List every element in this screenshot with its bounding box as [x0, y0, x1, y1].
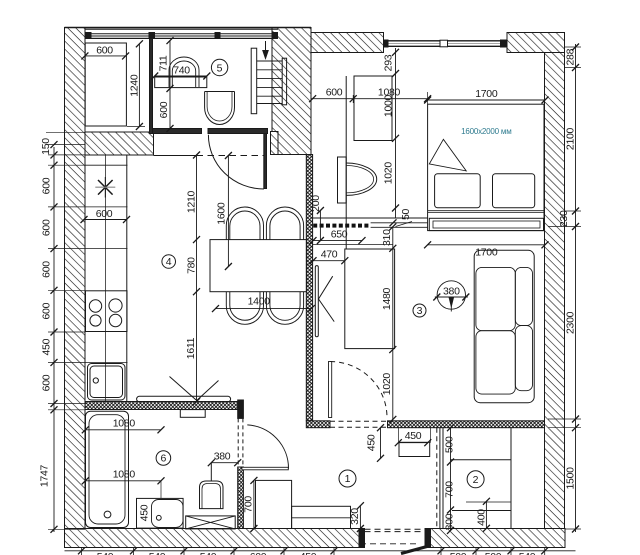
svg-text:740: 740 [173, 65, 190, 77]
svg-text:2300: 2300 [565, 311, 577, 334]
svg-text:600: 600 [41, 302, 53, 319]
svg-text:288: 288 [565, 48, 577, 65]
svg-text:600: 600 [41, 374, 53, 391]
svg-text:600: 600 [158, 101, 170, 118]
svg-text:1600x2000 мм: 1600x2000 мм [461, 127, 511, 136]
svg-text:1480: 1480 [381, 287, 393, 310]
svg-text:700: 700 [243, 496, 255, 513]
svg-text:450: 450 [366, 434, 378, 451]
svg-text:600: 600 [96, 208, 113, 220]
svg-text:1747: 1747 [39, 464, 51, 487]
svg-text:470: 470 [321, 249, 338, 261]
svg-text:780: 780 [186, 257, 198, 274]
svg-text:3: 3 [417, 305, 423, 317]
svg-text:600: 600 [41, 261, 53, 278]
svg-text:540: 540 [97, 551, 114, 555]
svg-text:380: 380 [443, 286, 460, 298]
svg-text:293: 293 [382, 54, 394, 71]
svg-text:1020: 1020 [381, 373, 393, 396]
svg-text:1700: 1700 [475, 247, 498, 259]
svg-text:500: 500 [444, 436, 456, 453]
svg-text:600: 600 [250, 551, 267, 555]
svg-text:5: 5 [217, 62, 223, 74]
svg-text:230: 230 [558, 210, 570, 227]
svg-text:2: 2 [473, 474, 479, 486]
svg-text:500: 500 [450, 551, 467, 555]
svg-text:380: 380 [214, 451, 231, 463]
svg-text:200: 200 [310, 195, 322, 212]
svg-text:450: 450 [300, 551, 317, 555]
svg-text:400: 400 [476, 509, 488, 526]
svg-text:700: 700 [444, 481, 456, 498]
svg-text:450: 450 [41, 338, 53, 355]
svg-text:540: 540 [149, 551, 166, 555]
svg-text:150: 150 [40, 138, 52, 155]
svg-text:540: 540 [519, 551, 536, 555]
svg-text:1080: 1080 [113, 469, 136, 481]
svg-text:1240: 1240 [129, 74, 141, 97]
svg-text:1: 1 [345, 473, 351, 485]
svg-text:1611: 1611 [185, 337, 197, 359]
svg-text:6: 6 [160, 453, 166, 465]
svg-text:4: 4 [166, 256, 172, 268]
svg-text:1700: 1700 [475, 88, 498, 100]
svg-text:1000: 1000 [382, 94, 394, 117]
svg-text:450: 450 [405, 430, 422, 442]
svg-text:310: 310 [381, 229, 393, 246]
svg-text:650: 650 [331, 229, 348, 241]
svg-text:50: 50 [400, 209, 412, 221]
svg-text:1500: 1500 [565, 467, 577, 490]
svg-text:320: 320 [349, 508, 361, 525]
svg-text:600: 600 [326, 87, 343, 99]
svg-text:711: 711 [158, 55, 170, 71]
svg-text:600: 600 [41, 177, 53, 194]
svg-text:1600: 1600 [215, 202, 227, 225]
svg-text:300: 300 [444, 513, 456, 530]
svg-text:1400: 1400 [248, 295, 271, 307]
svg-text:500: 500 [485, 551, 502, 555]
svg-text:1020: 1020 [382, 162, 394, 185]
svg-text:600: 600 [41, 219, 53, 236]
svg-text:600: 600 [96, 44, 113, 56]
svg-text:450: 450 [139, 504, 151, 521]
svg-text:1210: 1210 [186, 190, 198, 213]
svg-text:1080: 1080 [113, 418, 136, 430]
svg-text:540: 540 [200, 551, 217, 555]
svg-text:2100: 2100 [565, 127, 577, 150]
